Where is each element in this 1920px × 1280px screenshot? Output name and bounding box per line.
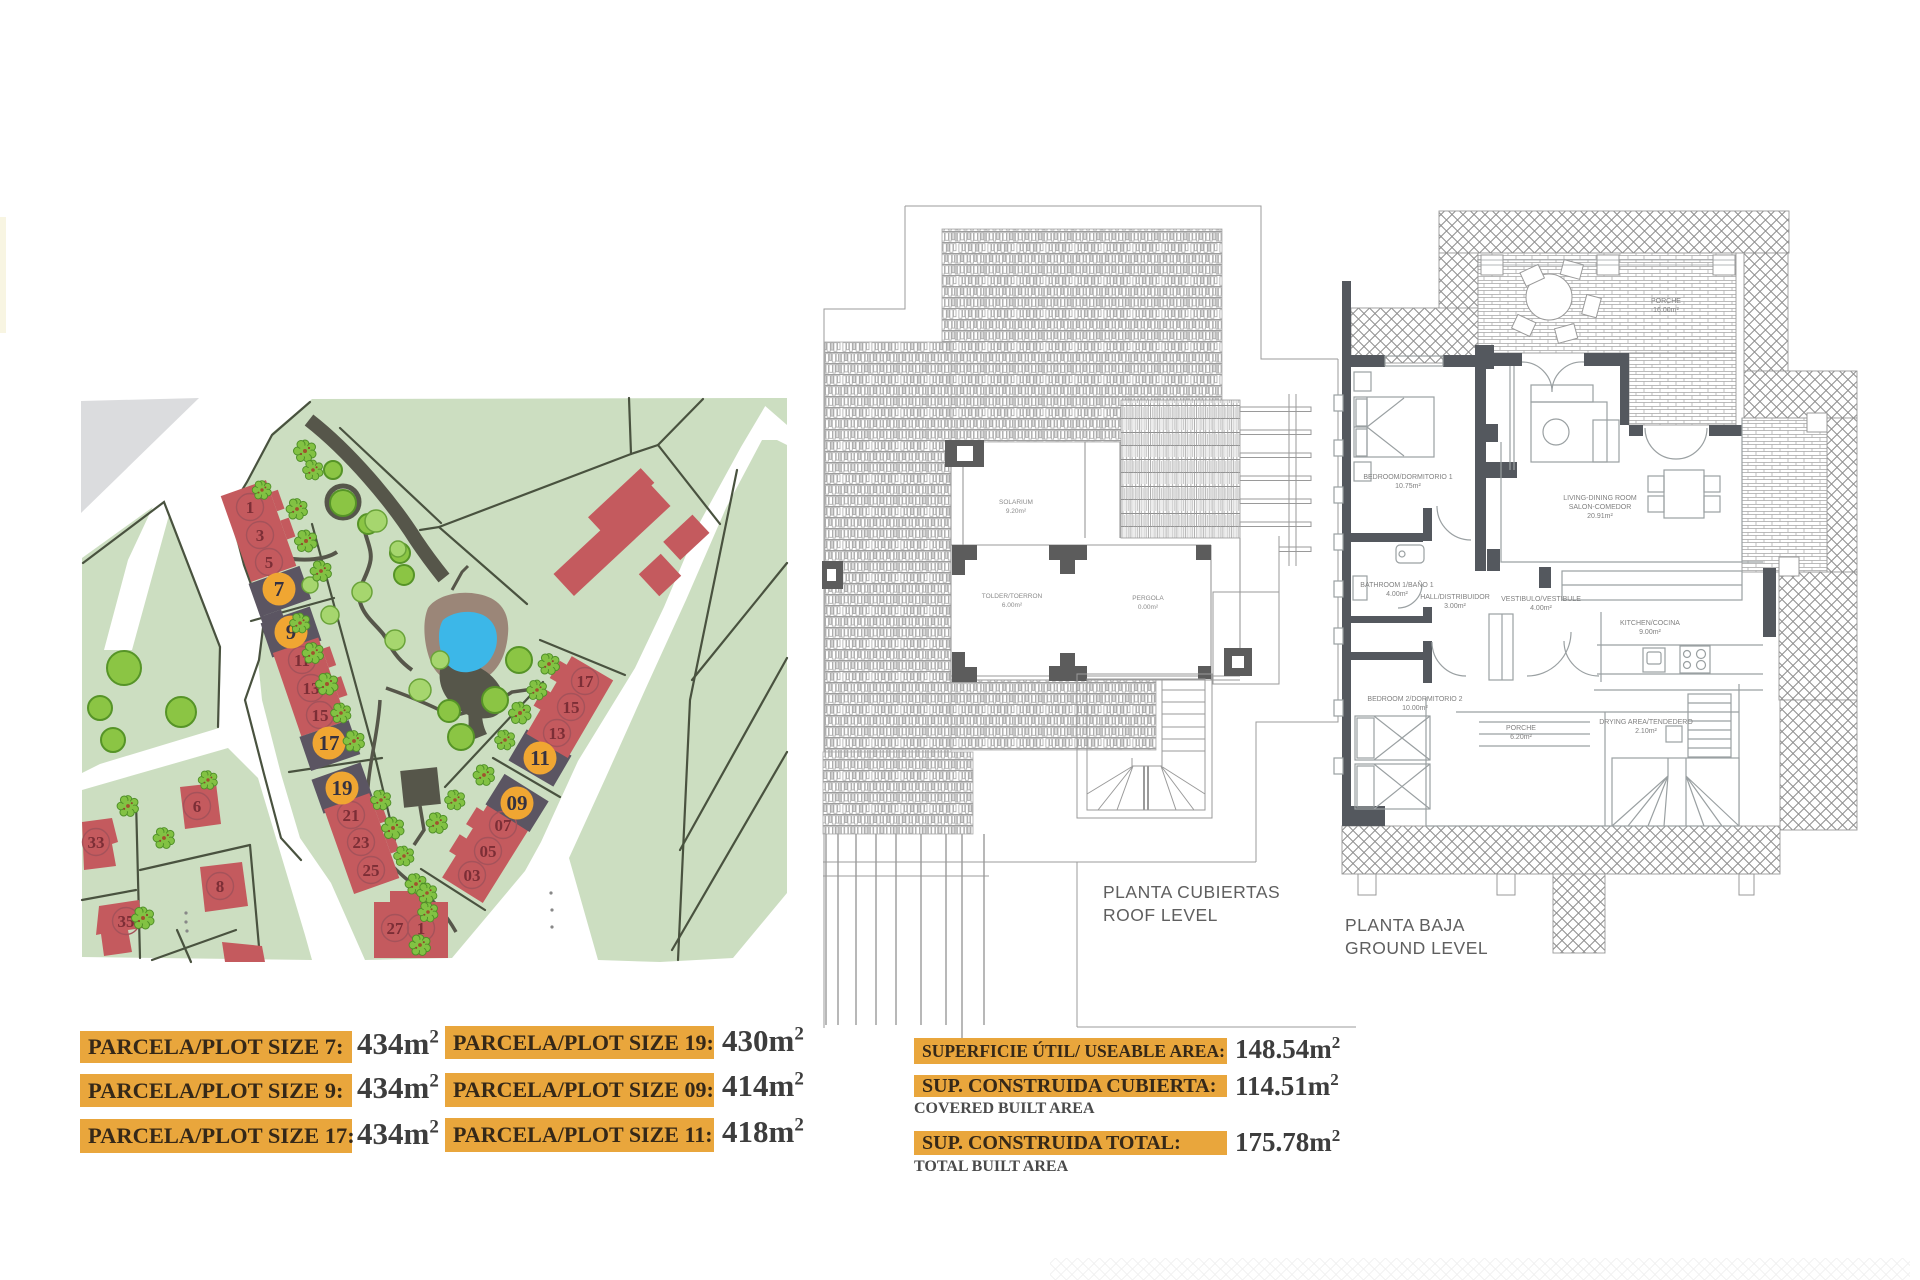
svg-text:10.75m²: 10.75m² — [1395, 483, 1421, 490]
svg-text:PORCHE: PORCHE — [1506, 725, 1536, 732]
svg-text:PORCHE: PORCHE — [1651, 298, 1681, 305]
svg-text:17: 17 — [577, 672, 595, 691]
svg-text:10.00m²: 10.00m² — [1402, 705, 1428, 712]
svg-text:3: 3 — [256, 526, 265, 545]
svg-text:BEDROOM/DORMITORIO 1: BEDROOM/DORMITORIO 1 — [1363, 474, 1452, 481]
svg-text:3.00m²: 3.00m² — [1444, 603, 1466, 610]
svg-text:05: 05 — [480, 842, 497, 861]
svg-text:19: 19 — [332, 776, 353, 800]
svg-text:PLANTA CUBIERTAS: PLANTA CUBIERTAS — [1103, 882, 1280, 902]
svg-text:03: 03 — [464, 866, 481, 885]
svg-text:33: 33 — [88, 833, 105, 852]
svg-text:16.00m²: 16.00m² — [1653, 307, 1679, 314]
svg-text:GROUND LEVEL: GROUND LEVEL — [1345, 938, 1488, 958]
svg-text:LIVING-DINING ROOM: LIVING-DINING ROOM — [1563, 495, 1637, 502]
svg-text:11: 11 — [530, 746, 550, 770]
svg-text:KITCHEN/COCINA: KITCHEN/COCINA — [1620, 620, 1680, 627]
svg-text:17: 17 — [319, 731, 340, 755]
svg-text:8: 8 — [216, 877, 225, 896]
svg-text:4.00m²: 4.00m² — [1386, 591, 1408, 598]
svg-text:7: 7 — [274, 577, 285, 601]
svg-text:6.20m²: 6.20m² — [1510, 734, 1532, 741]
svg-text:25: 25 — [363, 861, 380, 880]
svg-text:2.10m²: 2.10m² — [1635, 728, 1657, 735]
svg-text:07: 07 — [495, 816, 513, 835]
svg-text:15: 15 — [563, 698, 580, 717]
svg-text:27: 27 — [387, 919, 405, 938]
svg-text:4.00m²: 4.00m² — [1530, 605, 1552, 612]
svg-text:HALL/DISTRIBUIDOR: HALL/DISTRIBUIDOR — [1420, 594, 1490, 601]
svg-text:9.00m²: 9.00m² — [1639, 629, 1661, 636]
svg-text:BEDROOM 2/DORMITORIO 2: BEDROOM 2/DORMITORIO 2 — [1367, 696, 1462, 703]
svg-text:SALON-COMEDOR: SALON-COMEDOR — [1569, 504, 1632, 511]
svg-text:SOLARIUM: SOLARIUM — [999, 499, 1033, 506]
svg-text:15: 15 — [312, 706, 329, 725]
svg-text:6: 6 — [193, 797, 202, 816]
svg-text:1: 1 — [246, 498, 255, 517]
svg-text:09: 09 — [507, 791, 528, 815]
svg-text:BATHROOM 1/BAÑO 1: BATHROOM 1/BAÑO 1 — [1360, 580, 1433, 589]
svg-text:21: 21 — [343, 806, 360, 825]
svg-text:PLANTA BAJA: PLANTA BAJA — [1345, 915, 1465, 935]
svg-text:6.00m²: 6.00m² — [1002, 602, 1023, 609]
svg-text:VESTIBULO/VESTIBULE: VESTIBULO/VESTIBULE — [1501, 596, 1581, 603]
svg-text:TOLDER/TOERRON: TOLDER/TOERRON — [982, 593, 1043, 600]
svg-text:DRYING AREA/TENDEDERO: DRYING AREA/TENDEDERO — [1599, 719, 1693, 726]
svg-text:20.91m²: 20.91m² — [1587, 513, 1613, 520]
svg-text:ROOF LEVEL: ROOF LEVEL — [1103, 905, 1218, 925]
svg-text:13: 13 — [549, 724, 566, 743]
svg-text:9.20m²: 9.20m² — [1006, 508, 1027, 515]
svg-text:0.00m²: 0.00m² — [1138, 604, 1159, 611]
svg-text:PERGOLA: PERGOLA — [1132, 595, 1164, 602]
svg-text:35: 35 — [118, 912, 135, 931]
svg-text:23: 23 — [353, 833, 370, 852]
svg-text:5: 5 — [265, 553, 274, 572]
